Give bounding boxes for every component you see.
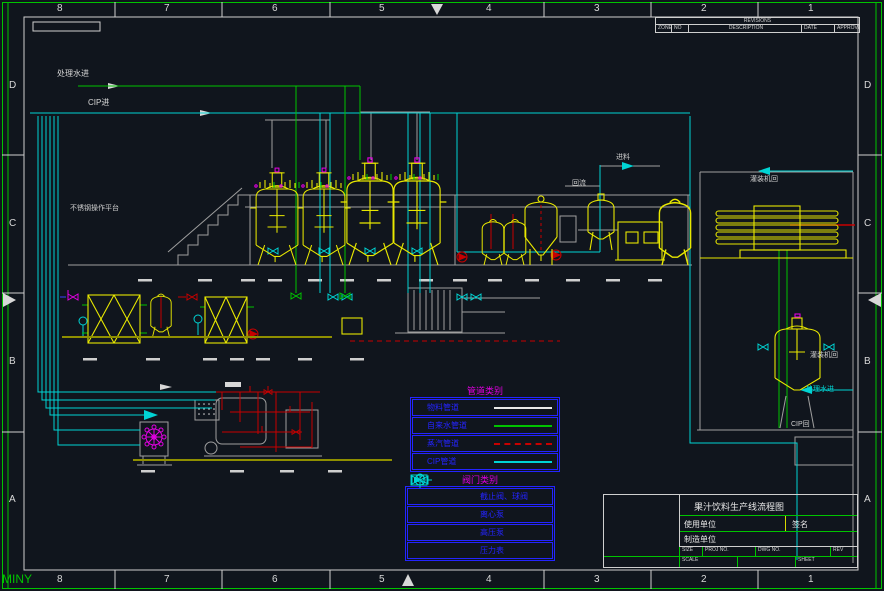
title-block-spacer — [604, 547, 680, 556]
cip-distributor — [142, 425, 166, 449]
row-letter: B — [9, 356, 16, 367]
label-filler-return-right: 灌装机回 — [810, 350, 838, 360]
valve-legend-row: 高压泵 — [407, 524, 553, 541]
zone-number: 8 — [57, 574, 63, 585]
title-block: 果汁饮料生产线流程图 使用单位 签名 制造单位 SIZE PROJ NO. DW… — [603, 494, 858, 568]
zone-number: 7 — [164, 574, 170, 585]
panel-dots — [198, 403, 215, 415]
field-proj-no: PROJ NO. — [703, 547, 756, 556]
zone-number: 3 — [594, 574, 600, 585]
title-block-spacer — [604, 557, 680, 567]
zone-number: 8 — [57, 3, 63, 14]
pipe-legend-row: 蒸汽管道 — [412, 435, 558, 452]
drawing-title: 果汁饮料生产线流程图 — [680, 495, 857, 516]
row-letter: A — [9, 494, 16, 505]
zone-number: 5 — [379, 3, 385, 14]
label-treated-water-in: 处理水进 — [57, 68, 89, 79]
zone-number: 6 — [272, 3, 278, 14]
valve-legend-row: 压力表 — [407, 542, 553, 559]
pipe-legend-row: 物料管道 — [412, 399, 558, 416]
zone-number: 1 — [808, 3, 814, 14]
steam-line-sample — [494, 443, 552, 445]
zone-number: 4 — [486, 574, 492, 585]
label-cip-in: CIP进 — [88, 97, 109, 108]
label-return: 回流 — [572, 178, 586, 188]
row-letter: A — [864, 494, 871, 505]
field-signature: 签名 — [786, 516, 857, 531]
title-block-logo-cell — [604, 495, 680, 547]
flow-arrows-white — [108, 83, 241, 390]
row-letter: D — [864, 80, 871, 91]
pipe-legend-row: 自来水管道 — [412, 417, 558, 434]
pipe-legend: 管道类别 物料管道 自来水管道 蒸汽管道 CIP管道 — [410, 384, 560, 472]
zone-number: 2 — [701, 574, 707, 585]
watermark: MINY — [2, 572, 32, 586]
field-rev: REV — [831, 547, 857, 556]
valve-legend: 阀门类别 截止阀、球阀 离心泵 高压泵 压力表 — [405, 473, 555, 561]
revision-col-approved: APPROVED — [835, 25, 859, 32]
zone-number: 6 — [272, 574, 278, 585]
row-letter: D — [9, 80, 16, 91]
title-block-spacer — [738, 557, 796, 567]
valve-legend-row: 截止阀、球阀 — [407, 488, 553, 505]
revision-col-date: DATE — [802, 25, 835, 32]
cip-line-sample — [494, 461, 552, 463]
pressure-gauge-icon — [405, 473, 435, 489]
left-valve-station — [60, 290, 78, 300]
material-line-sample — [494, 407, 552, 409]
field-dwg-no: DWG NO. — [756, 547, 831, 556]
valve-legend-row: 离心泵 — [407, 506, 553, 523]
zone-number: 3 — [594, 3, 600, 14]
equipment-name-tags — [83, 279, 662, 473]
label-feed: 进料 — [616, 152, 630, 162]
row-letter: C — [864, 218, 871, 229]
row-letter: B — [864, 356, 871, 367]
zone-number: 4 — [486, 3, 492, 14]
label-filler-return-top: 灌装机回 — [750, 174, 778, 184]
process-equipment — [88, 158, 853, 390]
pipe-legend-title: 管道类别 — [410, 384, 560, 397]
label-cip-return: CIP回 — [791, 419, 810, 429]
zone-number: 5 — [379, 574, 385, 585]
zone-number: 1 — [808, 574, 814, 585]
water-line-sample — [494, 425, 552, 427]
revision-table: REVISIONS ZONE NO DESCRIPTION DATE APPRO… — [655, 17, 860, 33]
row-letter: C — [9, 218, 16, 229]
field-maker-unit: 制造单位 — [680, 532, 857, 547]
label-platform-note: 不锈钢操作平台 — [70, 203, 119, 213]
revision-col-zone: ZONE — [656, 25, 672, 32]
field-size: SIZE — [680, 547, 703, 556]
water-pipelines — [78, 86, 787, 428]
label-treated-water-right: 处理水进 — [806, 384, 834, 394]
field-user-unit: 使用单位 — [680, 516, 786, 531]
zone-number: 7 — [164, 3, 170, 14]
pipe-legend-row: CIP管道 — [412, 453, 558, 470]
revision-col-description: DESCRIPTION — [689, 25, 802, 32]
zone-number: 2 — [701, 3, 707, 14]
field-sheet: SHEET — [796, 557, 857, 567]
cad-sheet: 8 7 6 5 4 3 2 1 8 7 6 5 4 3 2 1 D C B A … — [0, 0, 884, 591]
field-scale: SCALE — [680, 557, 738, 567]
revision-col-no: NO — [672, 25, 689, 32]
